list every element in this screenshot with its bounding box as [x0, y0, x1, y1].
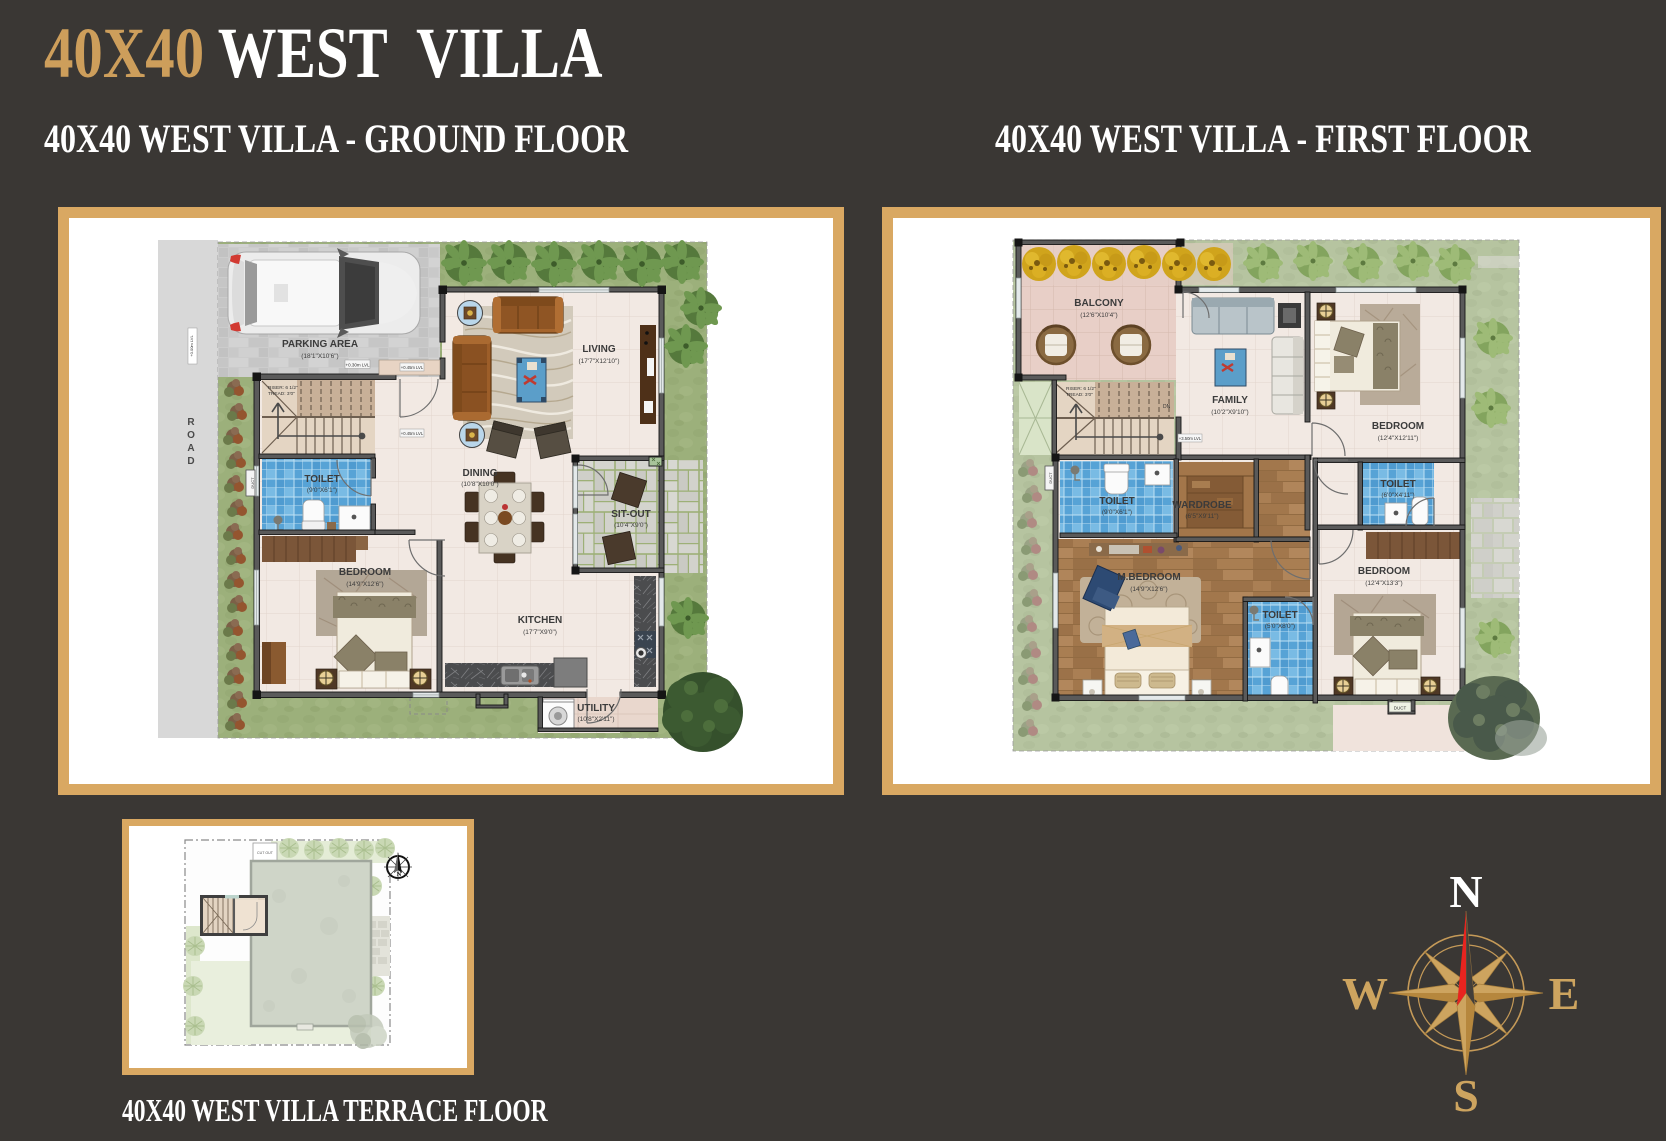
svg-text:TOILET: TOILET — [1380, 479, 1415, 490]
svg-text:BEDROOM: BEDROOM — [1358, 566, 1410, 577]
svg-text:(10'8"X2'11"): (10'8"X2'11") — [578, 716, 615, 723]
svg-text:TREAD: 3'0": TREAD: 3'0" — [1066, 392, 1093, 398]
svg-text:(12'4"X13'3"): (12'4"X13'3") — [1365, 580, 1402, 587]
svg-text:(12'6"X10'4"): (12'6"X10'4") — [1080, 312, 1117, 319]
svg-text:N: N — [397, 871, 402, 878]
svg-text:PARKING AREA: PARKING AREA — [282, 339, 358, 350]
svg-text:+0.45m LVL: +0.45m LVL — [401, 431, 424, 436]
svg-text:S: S — [1453, 1070, 1479, 1121]
svg-text:+3.50m LVL: +3.50m LVL — [1179, 436, 1202, 441]
svg-text:DUCT: DUCT — [1048, 472, 1053, 484]
svg-text:DINING: DINING — [463, 468, 498, 479]
svg-text:A: A — [187, 443, 194, 454]
svg-text:+0.45m LVL: +0.45m LVL — [401, 365, 424, 370]
svg-text:(14'9"X12'6"): (14'9"X12'6") — [1130, 586, 1167, 593]
svg-text:(6'0"X4'11"): (6'0"X4'11") — [1381, 492, 1414, 499]
svg-text:(12'4"X12'11"): (12'4"X12'11") — [1378, 435, 1419, 442]
svg-text:CUT OUT: CUT OUT — [257, 851, 274, 855]
svg-text:FAMILY: FAMILY — [1212, 395, 1248, 406]
svg-text:(10'2"X9'10"): (10'2"X9'10") — [1211, 409, 1248, 416]
svg-text:UTILITY: UTILITY — [577, 703, 615, 714]
svg-text:(9'0"X6'1"): (9'0"X6'1") — [1102, 509, 1132, 516]
svg-text:(10'8"X10'0"): (10'8"X10'0") — [461, 481, 498, 488]
svg-text:M.BEDROOM: M.BEDROOM — [1117, 572, 1180, 583]
svg-text:(9'0"X6'1"): (9'0"X6'1") — [307, 487, 337, 494]
svg-text:RISER: 6 1/2": RISER: 6 1/2" — [1066, 386, 1096, 392]
svg-text:R: R — [187, 417, 195, 428]
svg-text:DUCT: DUCT — [250, 477, 255, 489]
svg-text:BALCONY: BALCONY — [1074, 298, 1124, 309]
svg-text:D: D — [187, 456, 194, 467]
svg-text:KITCHEN: KITCHEN — [518, 615, 562, 626]
svg-text:E: E — [1549, 968, 1580, 1019]
svg-text:DUCT: DUCT — [1394, 706, 1407, 711]
svg-text:(5'0"X8'0"): (5'0"X8'0") — [1265, 623, 1295, 630]
svg-text:TREAD: 3'0": TREAD: 3'0" — [268, 391, 295, 397]
svg-text:DN: DN — [1163, 404, 1171, 410]
svg-text:RISER: 6 1/2": RISER: 6 1/2" — [268, 385, 298, 391]
svg-text:TOILET: TOILET — [1262, 610, 1297, 621]
svg-text:(10'4"X9'0"): (10'4"X9'0") — [614, 522, 648, 529]
svg-text:LIVING: LIVING — [582, 344, 616, 355]
svg-text:(18'1"X10'6"): (18'1"X10'6") — [301, 353, 338, 360]
svg-text:O: O — [187, 430, 195, 441]
svg-text:(14'9"X12'6"): (14'9"X12'6") — [346, 581, 383, 588]
svg-text:+0.30m LVL: +0.30m LVL — [345, 363, 370, 368]
svg-text:(6'5"X9'11"): (6'5"X9'11") — [1185, 513, 1218, 520]
svg-text:TOILET: TOILET — [304, 474, 339, 485]
svg-text:WARDROBE: WARDROBE — [1172, 500, 1232, 511]
svg-text:W: W — [1342, 968, 1388, 1019]
svg-text:(17'7"X12'10"): (17'7"X12'10") — [578, 358, 619, 365]
svg-text:SIT-OUT: SIT-OUT — [611, 509, 650, 520]
svg-text:(17'7"X9'0"): (17'7"X9'0") — [523, 629, 557, 636]
svg-text:BEDROOM: BEDROOM — [339, 567, 391, 578]
svg-text:TOILET: TOILET — [1099, 496, 1134, 507]
svg-text:N: N — [1449, 866, 1482, 917]
svg-text:+0.00m LVL: +0.00m LVL — [189, 335, 194, 357]
svg-text:BEDROOM: BEDROOM — [1372, 421, 1424, 432]
